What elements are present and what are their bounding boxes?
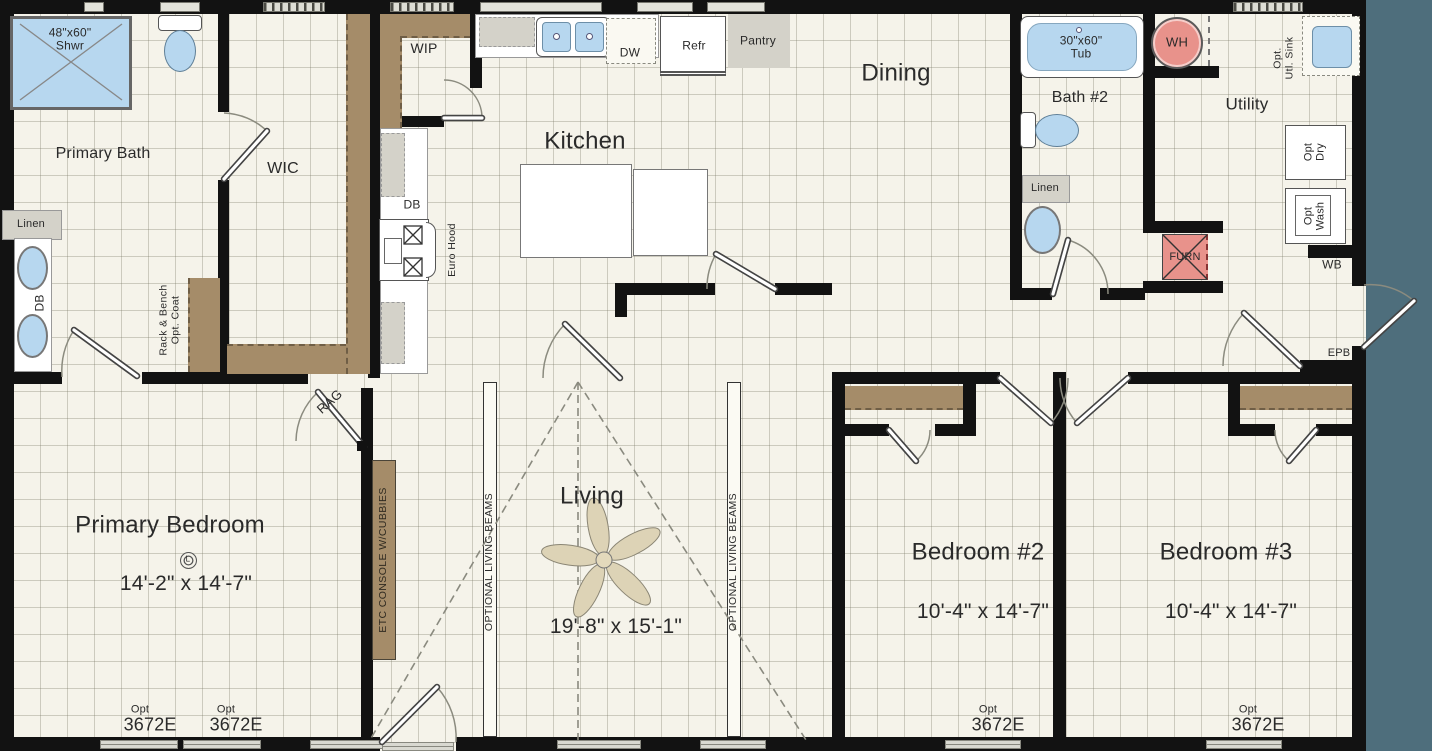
drain-icon (1076, 27, 1082, 33)
window-sill (183, 740, 261, 749)
oven-icon (384, 238, 402, 264)
room-label-living: Living (560, 484, 624, 511)
room-dims-primary-bedroom: 14'-2" x 14'-7" (120, 572, 252, 596)
room-label-bath2: Bath #2 (1052, 89, 1109, 107)
window-sill (1206, 740, 1282, 749)
room-label-bedroom3: Bedroom #3 (1160, 540, 1293, 567)
window (84, 2, 104, 12)
wall (845, 372, 1000, 384)
fixture-label-db: DB (33, 294, 46, 311)
room-label-wic: WIC (267, 160, 299, 178)
wall (615, 295, 627, 317)
label-epb: EPB (1328, 347, 1351, 359)
window (707, 2, 765, 12)
sink (17, 314, 48, 358)
wall (1308, 245, 1366, 258)
wall (0, 0, 14, 751)
window-sill (945, 740, 1021, 749)
toilet-tank (1020, 112, 1036, 148)
cabinet (381, 302, 405, 364)
window (160, 2, 200, 12)
room-dims-bedroom2: 10'-4" x 14'-7" (917, 600, 1049, 624)
coat-rack-bench (188, 278, 220, 372)
closet-front-dashed (1208, 16, 1210, 66)
fixture-label-furn: FURN (1169, 251, 1200, 263)
closet-shelf (346, 14, 370, 374)
kitchen-island (520, 164, 632, 258)
window-sill (310, 740, 384, 749)
window (263, 2, 325, 12)
euro-hood-bracket (426, 222, 436, 278)
door-arc (1364, 285, 1414, 301)
window-label-opt-3672e: Opt 3672E (124, 698, 157, 735)
wall (1300, 360, 1352, 373)
drain-icon (553, 33, 560, 40)
closet-shelf (845, 386, 963, 410)
window (637, 2, 693, 12)
fixture-label-linen2: Linen (1031, 182, 1059, 194)
wall (1143, 221, 1223, 233)
window-sill (700, 740, 766, 749)
toilet-bowl (164, 30, 196, 72)
fixture-label-shower: 48"x60" Shwr (49, 27, 92, 54)
room-label-dining: Dining (861, 61, 930, 88)
label-living-beam-left: OPTIONAL LIVING BEAMS (484, 493, 496, 631)
wall (1128, 372, 1366, 384)
toilet-bowl (1035, 114, 1079, 147)
toilet-tank (158, 15, 202, 31)
fixture-label-opt-wash: Opt Wash (1303, 202, 1328, 231)
fixture-label-refr: Refr (682, 39, 705, 52)
label-coat-rack: Rack & Bench Opt. Coat (158, 284, 182, 355)
window (480, 2, 602, 12)
floor-plan: Primary Bath WIC WIP Kitchen Dining Bath… (0, 0, 1432, 751)
label-living-beam-right: OPTIONAL LIVING BEAMS (728, 493, 740, 631)
wall (14, 372, 62, 384)
drain-icon (586, 33, 593, 40)
wall (1053, 372, 1066, 737)
fixture-label-db-kitchen: DB (403, 198, 420, 211)
cabinet (381, 133, 405, 197)
room-label-bedroom2: Bedroom #2 (912, 540, 1045, 567)
wall (935, 424, 976, 436)
fixture-label-tub: 30"x60" Tub (1060, 35, 1103, 62)
window-label-opt-3672e: Opt 3672E (972, 698, 1005, 735)
wall (845, 424, 889, 436)
pantry-shelf (380, 36, 402, 128)
closet-shelf (227, 344, 346, 374)
window-label-opt-3672e: Opt 3672E (210, 698, 243, 735)
closet-shelf (1240, 386, 1352, 410)
fixture-label-dw: DW (620, 46, 640, 59)
room-dims-bedroom3: 10'-4" x 14'-7" (1165, 600, 1297, 624)
fixture-label-pantry: Pantry (740, 34, 776, 47)
fixture-label-opt-dry: Opt Dry (1303, 143, 1328, 161)
pantry-shelf (380, 14, 470, 38)
label-wb: WB (1322, 258, 1342, 271)
wall (1316, 424, 1352, 436)
wall (832, 372, 845, 737)
window (390, 2, 454, 12)
label-etc-console: ETC CONSOLE W/CUBBIES (378, 487, 390, 633)
room-dims-living: 19'-8" x 15'-1" (550, 615, 682, 639)
room-label-kitchen: Kitchen (544, 129, 625, 156)
door-threshold (382, 742, 454, 751)
room-label-wip: WIP (410, 41, 437, 57)
label-light: L (186, 556, 191, 565)
wall (218, 14, 229, 112)
wall (615, 283, 715, 295)
wall (1143, 281, 1223, 293)
sink (1024, 206, 1061, 254)
window (1233, 2, 1303, 12)
fixture-label-euro-hood: Euro Hood (447, 223, 459, 277)
cabinet (479, 17, 535, 47)
room-label-primary-bath: Primary Bath (56, 145, 151, 163)
window-sill (557, 740, 641, 749)
fixture-label-linen: Linen (17, 218, 45, 230)
fixture-label-wh: WH (1166, 36, 1188, 51)
window-label-opt-3672e: Opt 3672E (1232, 698, 1265, 735)
wall (1352, 346, 1366, 751)
sink-basin (1312, 26, 1352, 68)
sink (17, 246, 48, 290)
room-label-primary-bedroom: Primary Bedroom (75, 513, 265, 540)
room-label-utility: Utility (1226, 94, 1269, 113)
window-sill (100, 740, 178, 749)
wall (1100, 288, 1145, 300)
wall (1228, 424, 1275, 436)
wall (775, 283, 832, 295)
wall (1010, 288, 1052, 300)
kitchen-island (633, 169, 708, 256)
fixture-label-opt-utl-sink: Opt. Utl. Sink (1272, 37, 1296, 80)
